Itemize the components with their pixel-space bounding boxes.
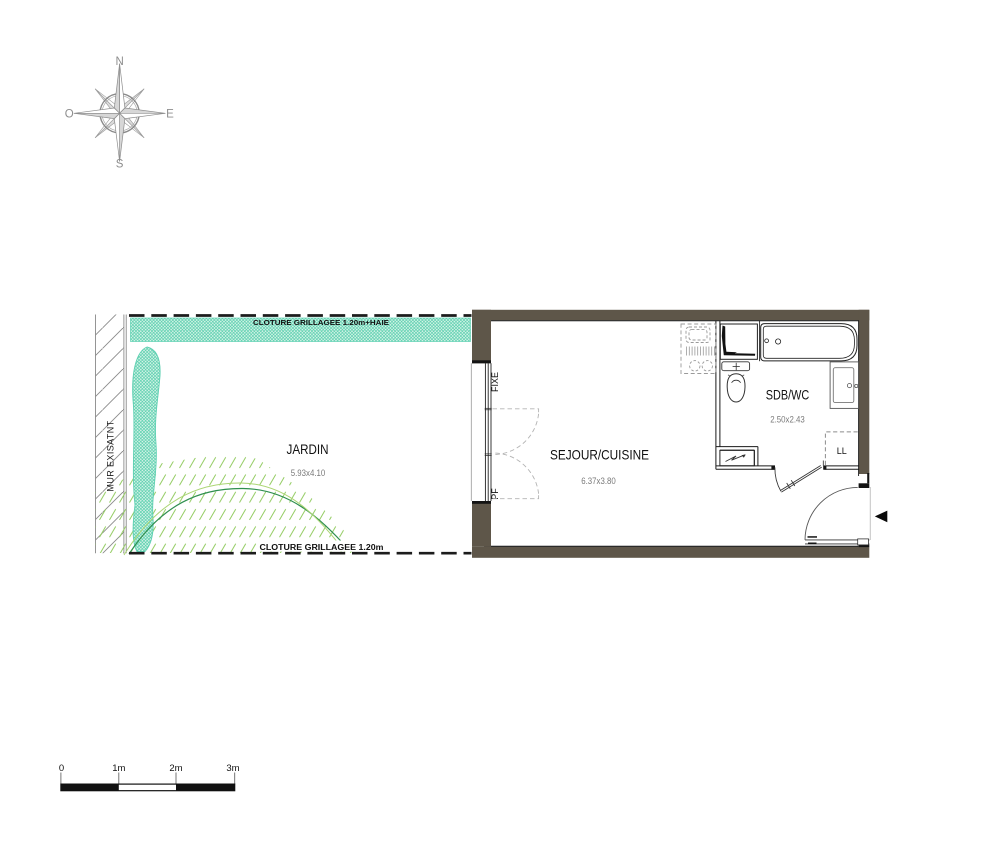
svg-text:6.37x3.80: 6.37x3.80 [581,476,616,486]
svg-text:MUR EXISATNT: MUR EXISATNT [106,420,116,491]
svg-text:JARDIN: JARDIN [287,441,329,457]
svg-text:3m: 3m [226,763,239,774]
svg-text:PF: PF [490,488,500,500]
svg-text:N: N [115,56,123,68]
svg-text:1m: 1m [112,763,125,774]
svg-text:E: E [166,108,174,120]
svg-text:S: S [116,159,124,171]
svg-text:2.50x2.43: 2.50x2.43 [770,414,805,424]
svg-text:CLOTURE GRILLAGEE 1.20m+HAIE: CLOTURE GRILLAGEE 1.20m+HAIE [253,318,389,327]
svg-text:O: O [65,108,74,120]
svg-text:SEJOUR/CUISINE: SEJOUR/CUISINE [550,447,649,463]
svg-text:CLOTURE GRILLAGEE 1.20m: CLOTURE GRILLAGEE 1.20m [260,543,384,552]
svg-text:SDB/WC: SDB/WC [766,386,810,402]
svg-text:2m: 2m [169,763,182,774]
svg-text:0: 0 [59,763,64,774]
svg-text:LL: LL [837,446,847,456]
svg-text:5.93x4.10: 5.93x4.10 [291,468,326,478]
svg-text:FIXE: FIXE [490,372,500,392]
